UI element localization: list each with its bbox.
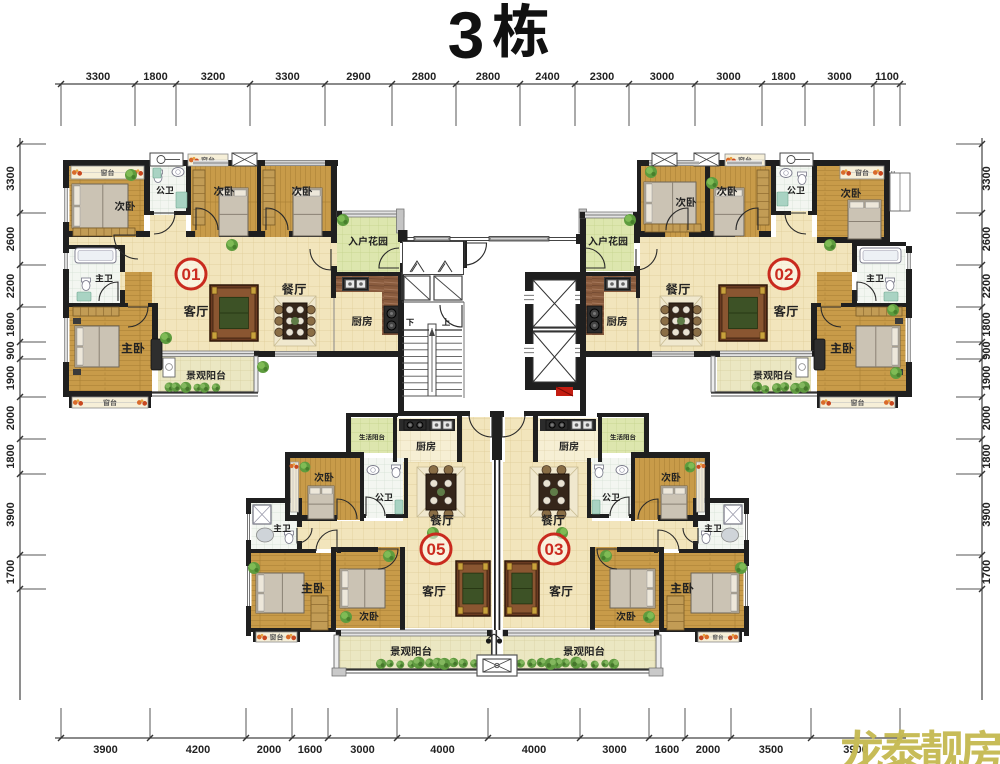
svg-text:1100: 1100 <box>875 71 899 83</box>
svg-text:3300: 3300 <box>86 71 110 83</box>
svg-text:2800: 2800 <box>476 71 500 83</box>
svg-text:1600: 1600 <box>655 744 679 756</box>
svg-text:3300: 3300 <box>981 166 993 190</box>
svg-text:1700: 1700 <box>5 560 17 584</box>
svg-text:2900: 2900 <box>346 71 370 83</box>
svg-text:3300: 3300 <box>275 71 299 83</box>
svg-text:900: 900 <box>981 341 993 359</box>
svg-text:1900: 1900 <box>5 366 17 390</box>
svg-text:2400: 2400 <box>535 71 559 83</box>
svg-text:1700: 1700 <box>981 560 993 584</box>
svg-text:2000: 2000 <box>5 406 17 430</box>
svg-text:3000: 3000 <box>650 71 674 83</box>
svg-text:1800: 1800 <box>981 312 993 336</box>
svg-text:3000: 3000 <box>602 744 626 756</box>
svg-text:3900: 3900 <box>5 502 17 526</box>
svg-text:02: 02 <box>775 265 794 284</box>
svg-text:2600: 2600 <box>981 227 993 251</box>
svg-text:2200: 2200 <box>981 274 993 298</box>
svg-text:05: 05 <box>427 540 446 559</box>
svg-text:2000: 2000 <box>696 744 720 756</box>
svg-text:1800: 1800 <box>771 71 795 83</box>
svg-text:3200: 3200 <box>201 71 225 83</box>
svg-text:1900: 1900 <box>981 366 993 390</box>
svg-text:3000: 3000 <box>350 744 374 756</box>
svg-text:01: 01 <box>182 265 201 284</box>
svg-text:3900: 3900 <box>93 744 117 756</box>
svg-text:3900: 3900 <box>981 502 993 526</box>
svg-text:1800: 1800 <box>5 312 17 336</box>
svg-text:4000: 4000 <box>430 744 454 756</box>
svg-text:2200: 2200 <box>5 274 17 298</box>
svg-text:1800: 1800 <box>143 71 167 83</box>
svg-text:2000: 2000 <box>981 406 993 430</box>
svg-text:3300: 3300 <box>5 166 17 190</box>
svg-text:03: 03 <box>545 540 564 559</box>
svg-text:2300: 2300 <box>590 71 614 83</box>
svg-text:1800: 1800 <box>981 444 993 468</box>
svg-text:4000: 4000 <box>522 744 546 756</box>
svg-text:2800: 2800 <box>412 71 436 83</box>
svg-text:2000: 2000 <box>257 744 281 756</box>
svg-text:2600: 2600 <box>5 227 17 251</box>
svg-text:3000: 3000 <box>716 71 740 83</box>
svg-text:1800: 1800 <box>5 444 17 468</box>
svg-text:3000: 3000 <box>827 71 851 83</box>
svg-text:900: 900 <box>5 341 17 359</box>
svg-text:3500: 3500 <box>759 744 783 756</box>
svg-text:4200: 4200 <box>186 744 210 756</box>
svg-text:1600: 1600 <box>298 744 322 756</box>
svg-text:3: 3 <box>448 0 485 72</box>
